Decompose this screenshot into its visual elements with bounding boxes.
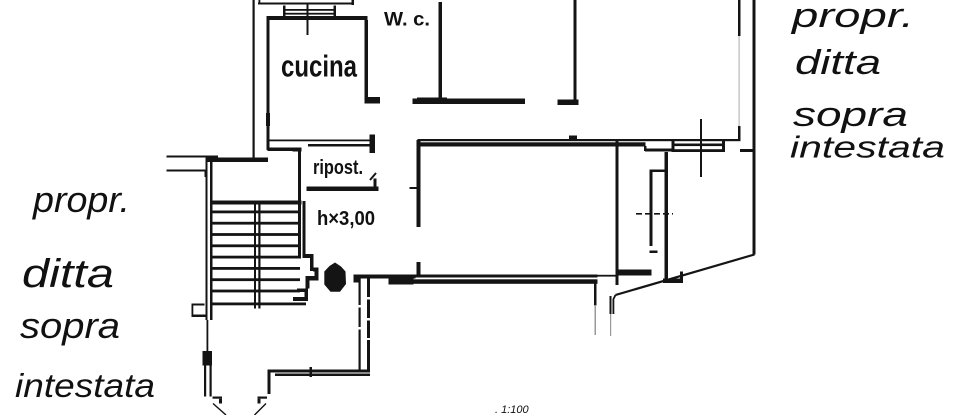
svg-text:propr.: propr. [791, 0, 914, 35]
svg-text:intestata: intestata [15, 367, 155, 404]
svg-text:sopra: sopra [20, 305, 120, 346]
svg-text:propr.: propr. [32, 179, 130, 220]
svg-text:ditta: ditta [795, 44, 881, 82]
svg-text:W. c.: W. c. [384, 10, 430, 31]
svg-text:h×3,00: h×3,00 [317, 208, 375, 230]
svg-text:. 1:100: . 1:100 [495, 404, 530, 415]
svg-text:cucina: cucina [281, 49, 358, 84]
svg-text:sopra: sopra [793, 96, 908, 134]
svg-text:intestata: intestata [790, 130, 945, 165]
svg-text:ripost.: ripost. [313, 157, 363, 179]
svg-text:ditta: ditta [22, 252, 114, 296]
